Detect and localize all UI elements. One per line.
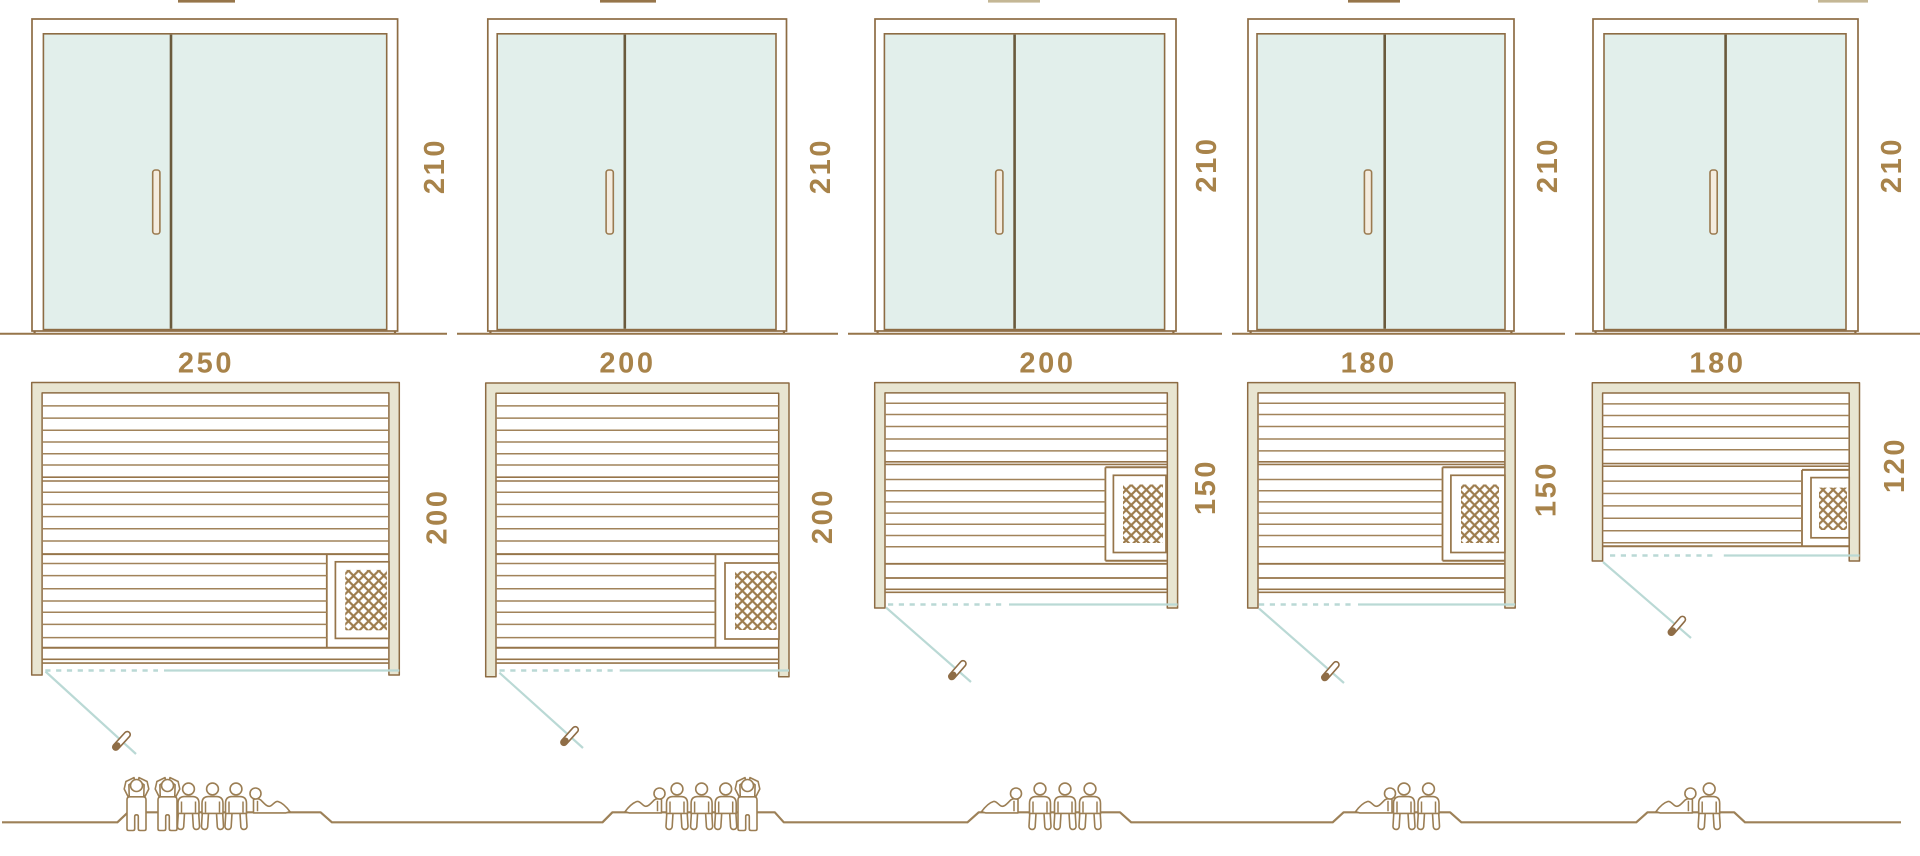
svg-text:180: 180 (1689, 348, 1745, 380)
svg-text:210: 210 (1532, 137, 1564, 193)
svg-text:200: 200 (422, 488, 454, 544)
svg-text:200: 200 (599, 348, 655, 380)
svg-text:150: 150 (1531, 461, 1563, 517)
svg-text:210: 210 (419, 138, 451, 194)
svg-text:250: 250 (178, 348, 234, 380)
svg-text:210: 210 (1191, 136, 1223, 192)
svg-text:200: 200 (1019, 348, 1075, 380)
svg-text:150: 150 (1190, 459, 1222, 515)
svg-text:210: 210 (805, 138, 837, 194)
svg-text:210: 210 (1876, 137, 1908, 193)
svg-text:120: 120 (1879, 437, 1911, 493)
svg-text:200: 200 (807, 488, 839, 544)
svg-text:180: 180 (1341, 348, 1397, 380)
